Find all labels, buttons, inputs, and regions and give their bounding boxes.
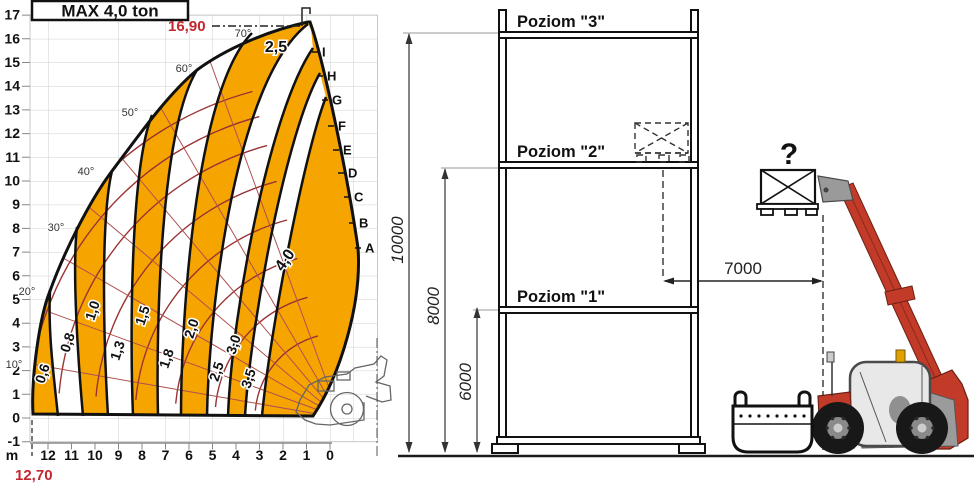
level-1-label: Poziom "1" <box>517 288 605 306</box>
load-chart: 17 16 15 14 13 12 11 10 9 8 7 6 5 4 3 2 … <box>0 1 391 484</box>
boundary-letter: H <box>327 69 336 84</box>
rack-base-beam <box>497 437 700 444</box>
y-tick: 9 <box>12 196 20 212</box>
rear-wheel <box>896 402 948 454</box>
max-height-label: 16,90 <box>168 18 206 35</box>
rack-beam-level1 <box>499 307 698 313</box>
bin-body <box>733 406 812 452</box>
rack-foot-right <box>679 444 705 453</box>
dimension-7000: 7000 <box>663 259 823 285</box>
x-tick: 6 <box>185 447 193 463</box>
dimension-10000: 10000 <box>388 33 413 453</box>
level-3-label: Poziom "3" <box>517 13 605 31</box>
x-tick: 5 <box>209 447 217 463</box>
rack-post-right <box>691 10 698 443</box>
max-reach-label: 12,70 <box>15 467 53 484</box>
telehandler-reach-diagram: 17 16 15 14 13 12 11 10 9 8 7 6 5 4 3 2 … <box>0 0 976 491</box>
arrow-down-icon <box>442 442 449 453</box>
chart-title: MAX 4,0 ton <box>61 2 158 21</box>
y-tick: 6 <box>12 267 20 283</box>
boundary-letter: B <box>359 216 368 231</box>
y-tick: 1 <box>12 386 20 402</box>
ghost-pallet <box>635 123 689 162</box>
extension-lines <box>403 33 500 310</box>
arrow-up-icon <box>442 168 449 179</box>
angle-label: 40° <box>78 166 95 178</box>
pallet-foot <box>806 209 817 215</box>
boundary-letter: I <box>322 45 326 60</box>
x-tick: 12 <box>40 447 56 463</box>
dimension-6000-label: 6000 <box>456 363 475 401</box>
rack-beam-level2 <box>499 162 698 168</box>
angle-label: 30° <box>48 222 65 234</box>
y-tick: 7 <box>12 244 20 260</box>
x-tick: 8 <box>138 447 146 463</box>
y-tick: 0 <box>12 410 20 426</box>
x-tick: 9 <box>115 447 123 463</box>
rack-post-left <box>499 10 506 443</box>
telehandler-machine <box>812 176 968 454</box>
y-tick: 3 <box>12 338 20 354</box>
arrow-up-icon <box>406 33 413 44</box>
dimension-8000-label: 8000 <box>424 287 443 325</box>
y-tick: 8 <box>12 220 20 236</box>
y-tick: 12 <box>4 125 20 141</box>
x-tick: 10 <box>87 447 103 463</box>
pallet-foot <box>761 209 773 215</box>
y-axis-ticks <box>22 15 30 442</box>
mirror <box>827 352 834 362</box>
question-mark-label: ? <box>780 138 798 171</box>
boundary-letter: E <box>343 143 352 158</box>
diagram-canvas: 17 16 15 14 13 12 11 10 9 8 7 6 5 4 3 2 … <box>0 0 976 491</box>
x-tick: 7 <box>162 447 170 463</box>
x-tick: 1 <box>303 447 311 463</box>
axis-unit: m <box>6 447 18 463</box>
angle-label: 70° <box>235 28 252 40</box>
y-tick: 16 <box>4 30 20 46</box>
rack-structure <box>492 10 705 453</box>
level-2-label: Poziom "2" <box>517 143 605 161</box>
carried-pallet: ? <box>757 138 818 215</box>
angle-label: 60° <box>176 63 193 75</box>
arrow-left-icon <box>663 278 674 285</box>
dimension-6000: 6000 <box>456 307 481 453</box>
y-tick: 17 <box>4 7 20 23</box>
y-tick: 15 <box>4 54 20 70</box>
x-tick: 3 <box>256 447 264 463</box>
rack-beam-level3 <box>499 32 698 38</box>
boundary-letter: F <box>338 119 346 134</box>
boundary-letter: A <box>365 241 375 256</box>
x-tick: 11 <box>64 447 79 463</box>
arrow-down-icon <box>474 442 481 453</box>
arrow-right-icon <box>812 278 823 285</box>
rack-diagram: 10000 8000 6000 7000 <box>388 10 974 456</box>
x-tick: 0 <box>326 447 334 463</box>
hopper-bin <box>733 392 812 452</box>
pallet-foot <box>785 209 797 215</box>
angle-label: 20° <box>19 286 36 298</box>
y-tick: 10 <box>4 173 20 189</box>
y-tick: 4 <box>12 315 20 331</box>
y-tick: 11 <box>5 149 20 165</box>
boundary-letter: D <box>348 166 357 181</box>
rack-foot-left <box>492 444 518 453</box>
boundary-letter: G <box>332 93 342 108</box>
front-wheel <box>812 402 864 454</box>
angle-label: 50° <box>122 107 139 119</box>
angle-label: 10° <box>6 359 23 371</box>
y-tick: 14 <box>4 78 20 94</box>
carriage-pin <box>824 188 829 193</box>
x-tick: 4 <box>232 447 240 463</box>
capacity-label-top: 2,5 <box>265 39 287 56</box>
x-tick: 2 <box>279 447 287 463</box>
arrow-up-icon <box>474 307 481 318</box>
dimension-7000-label: 7000 <box>724 259 762 278</box>
boundary-letter: C <box>354 190 364 205</box>
dimension-10000-label: 10000 <box>388 216 407 264</box>
fork-carriage <box>818 176 853 202</box>
dimension-8000: 8000 <box>424 168 449 453</box>
y-axis-labels: 17 16 15 14 13 12 11 10 9 8 7 6 5 4 3 2 … <box>4 7 20 450</box>
y-tick: 13 <box>4 101 20 117</box>
x-axis-labels: m 12 11 10 9 8 7 6 5 4 3 2 1 0 <box>6 447 334 463</box>
beacon-light <box>896 350 905 362</box>
arrow-down-icon <box>406 442 413 453</box>
